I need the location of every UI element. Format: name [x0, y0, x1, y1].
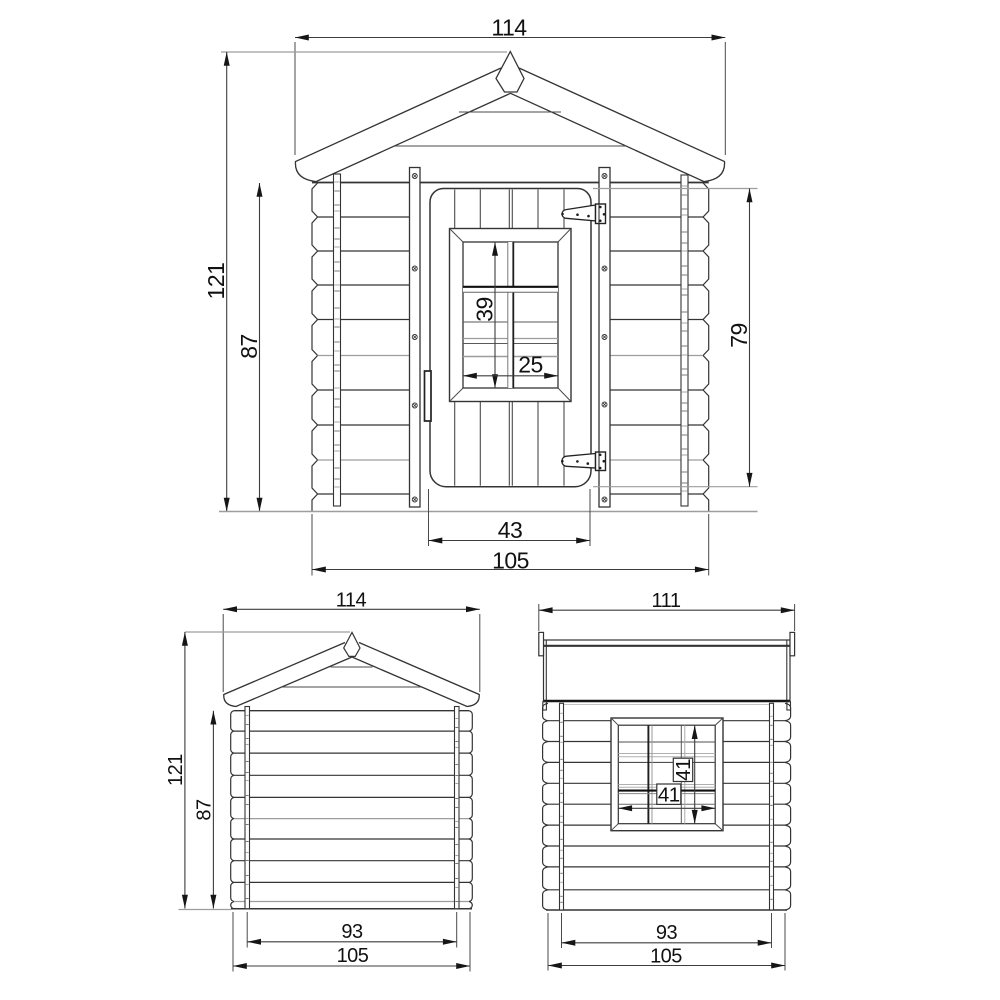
svg-text:111: 111	[652, 590, 681, 612]
svg-text:114: 114	[491, 14, 527, 40]
svg-text:41: 41	[658, 783, 680, 806]
svg-text:105: 105	[492, 547, 529, 573]
svg-text:93: 93	[656, 922, 678, 944]
svg-text:79: 79	[726, 323, 752, 348]
svg-text:105: 105	[650, 946, 682, 968]
svg-text:105: 105	[337, 945, 369, 967]
svg-text:93: 93	[341, 921, 363, 943]
svg-text:41: 41	[672, 759, 695, 781]
svg-text:87: 87	[194, 799, 216, 821]
svg-text:25: 25	[518, 352, 543, 378]
svg-text:114: 114	[336, 589, 367, 611]
svg-text:121: 121	[165, 754, 187, 786]
svg-text:121: 121	[203, 263, 229, 300]
svg-text:43: 43	[498, 517, 523, 543]
svg-text:87: 87	[236, 334, 262, 359]
svg-text:39: 39	[472, 297, 498, 322]
